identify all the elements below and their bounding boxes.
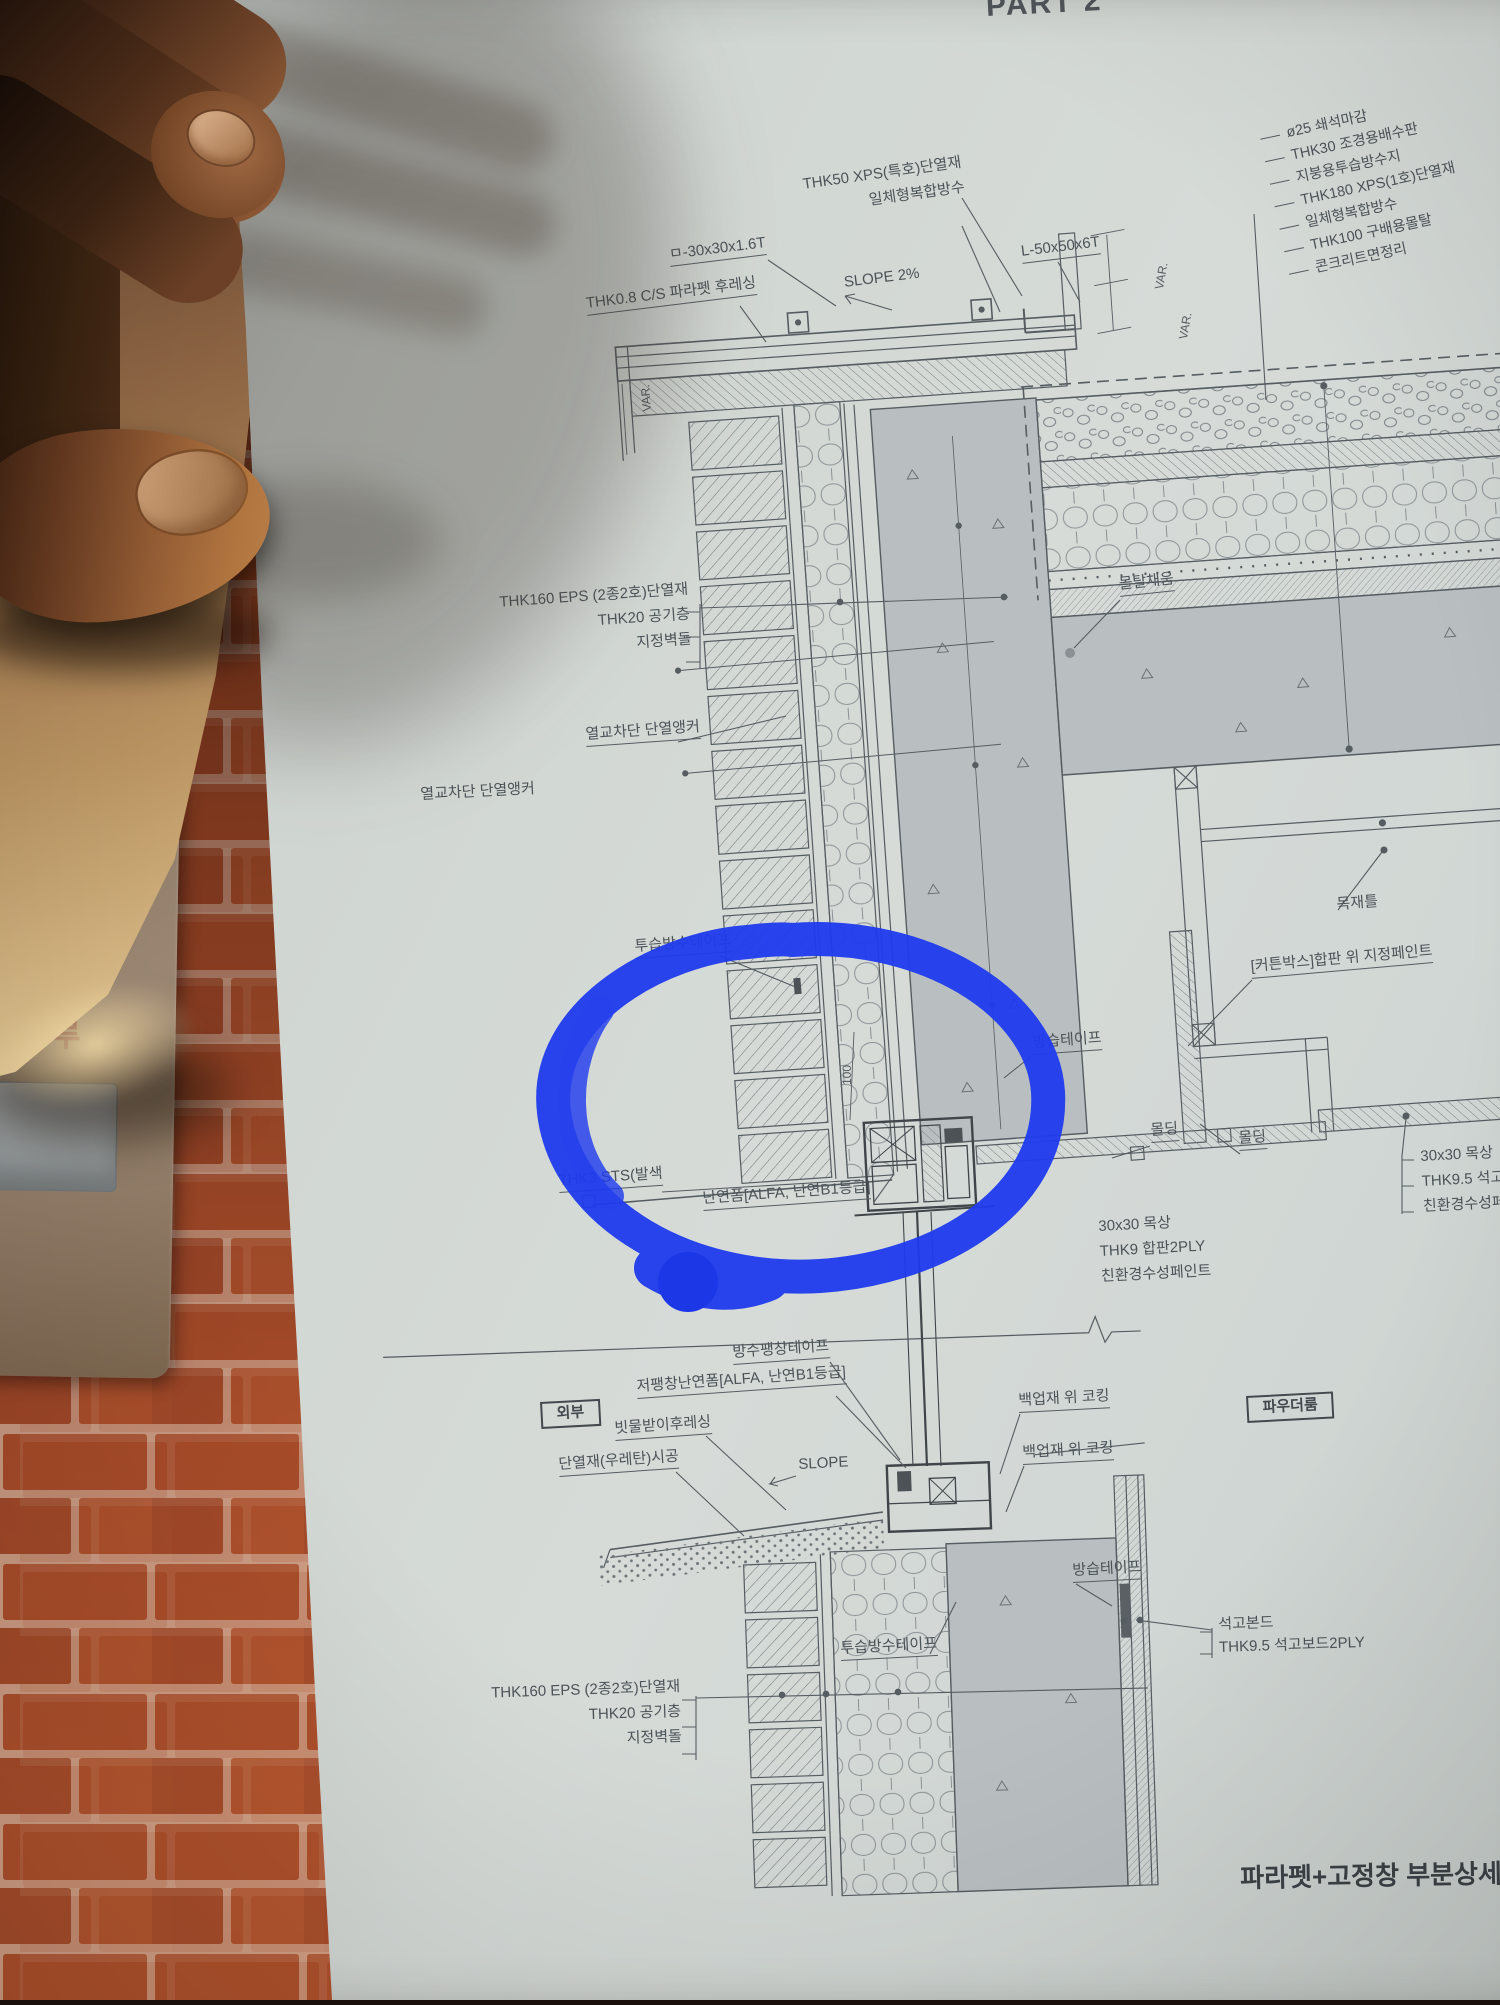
window-sill-frame — [887, 1462, 991, 1532]
roof-assembly — [1021, 350, 1500, 776]
slope-label: SLOPE — [798, 1453, 849, 1474]
wood-frame-label: 목재틀 — [1336, 893, 1379, 915]
leader-tick — [1265, 157, 1285, 162]
vapor-tape-label-lower: 방습테이프 — [1072, 1558, 1142, 1582]
var-left-label: VAR. — [638, 384, 655, 412]
gypsum-bond-dab — [1120, 1583, 1132, 1637]
leader-tick — [1279, 225, 1299, 230]
wall-layer-labels-lower: THK160 EPS (2종2호)단열재 THK20 공기층 지정벽돌 — [450, 1678, 682, 1761]
wall-layer-labels-upper: THK160 EPS (2종2호)단열재 THK20 공기층 지정벽돌 — [468, 581, 693, 671]
sheet-title: 파라펫+고정창 부분상세도 — [1240, 1857, 1500, 1894]
window-frames — [850, 1116, 995, 1532]
upper-detail — [518, 200, 1500, 1207]
concrete-wall-lower — [946, 1538, 1128, 1892]
dim-100-label: 100 — [840, 1065, 855, 1085]
leader-tick — [1275, 202, 1295, 207]
photo-scene: 하루 — [0, 0, 1500, 2000]
leader-tick — [1260, 135, 1280, 140]
exterior-room-label: 외부 — [540, 1399, 601, 1429]
molding-label-a: 몰딩 — [1150, 1120, 1179, 1143]
molding-label-b: 몰딩 — [1238, 1128, 1267, 1151]
ceiling-layer-labels: 30x30 목상 THK9.5 석고보드 친환경수성페인트 — [1420, 1142, 1500, 1223]
powder-room-label: 파우더룸 — [1246, 1391, 1334, 1422]
brick-veneer-lower — [744, 1562, 827, 1887]
leader-tick — [1289, 270, 1309, 275]
eps-insulation-lower — [830, 1548, 958, 1896]
leader-tick — [1284, 247, 1304, 252]
gypsum-labels: 석고본드 THK9.5 석고보드2PLY — [1218, 1611, 1365, 1662]
soffit-layer-labels: 30x30 목상 THK9 합판2PLY 친환경수성페인트 — [1098, 1212, 1212, 1293]
leader-tick — [1270, 180, 1290, 185]
